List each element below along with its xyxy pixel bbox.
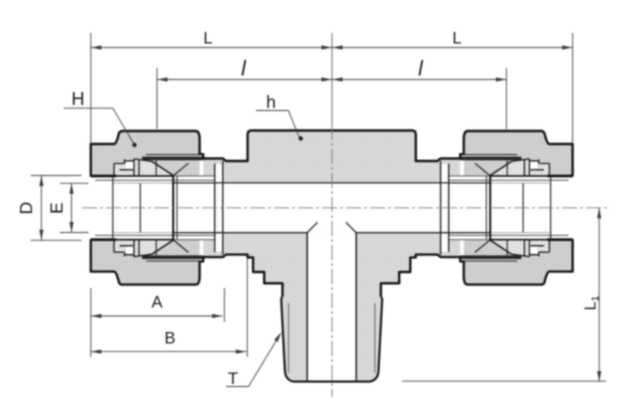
svg-text:B: B xyxy=(164,330,175,348)
svg-text:D: D xyxy=(16,202,36,215)
svg-text:H: H xyxy=(72,89,85,109)
svg-text:A: A xyxy=(151,294,162,312)
svg-text:T: T xyxy=(228,369,238,388)
svg-text:h: h xyxy=(266,92,276,112)
svg-text:E: E xyxy=(47,202,67,214)
svg-text:L: L xyxy=(203,30,212,48)
svg-text:L: L xyxy=(452,30,461,48)
